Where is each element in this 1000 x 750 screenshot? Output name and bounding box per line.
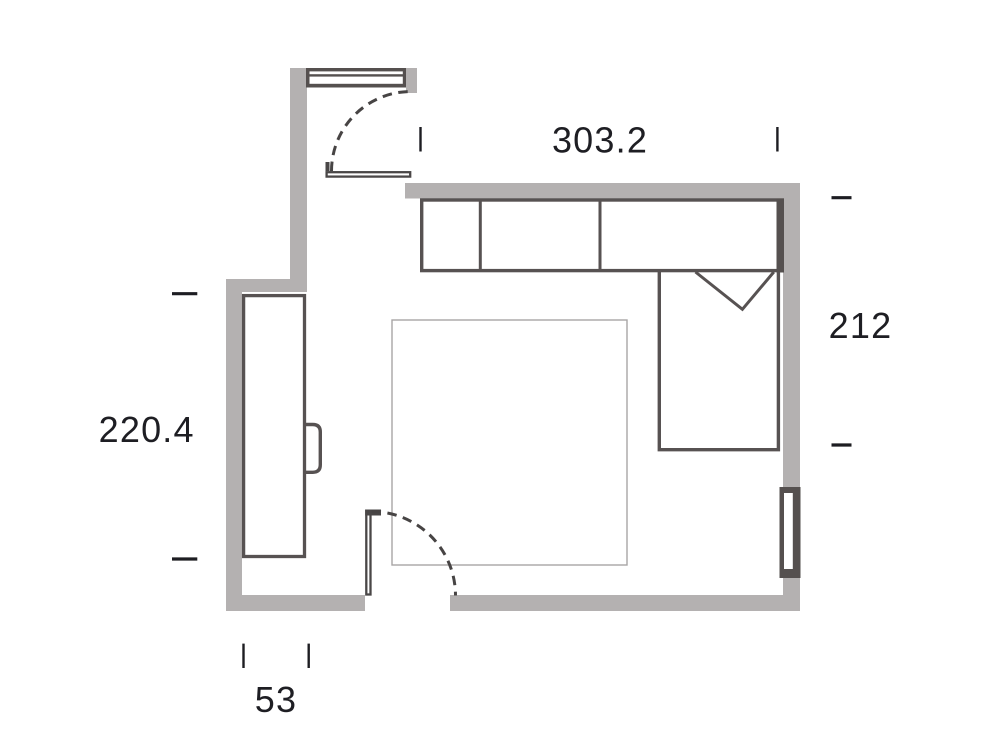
svg-text:220.4: 220.4 (99, 409, 195, 450)
svg-text:53: 53 (255, 679, 297, 720)
svg-text:303.2: 303.2 (552, 120, 648, 161)
svg-text:212: 212 (829, 305, 893, 346)
